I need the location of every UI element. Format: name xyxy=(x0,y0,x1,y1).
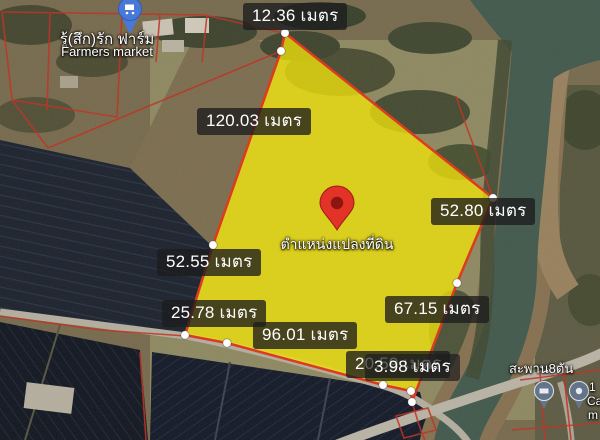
parcel-marker-label: ตำแหน่งแปลงที่ดิน xyxy=(262,234,412,256)
measurement-upper-left: 120.03 เมตร xyxy=(197,108,311,135)
bridge-label: สะพาน8ตัน xyxy=(509,358,573,379)
measurement-lower-right: 67.15 เมตร xyxy=(385,296,489,323)
measurement-left: 52.55 เมตร xyxy=(157,249,261,276)
measurement-right: 52.80 เมตร xyxy=(431,198,535,225)
measurement-bottom: 96.01 เมตร xyxy=(253,322,357,349)
measurement-corner-b: 3.98 เมตร xyxy=(365,354,460,381)
satellite-map[interactable]: รู้(สึก)รัก ฟาร์ม Farmers market 12.36 เ… xyxy=(0,0,600,440)
edge-poi-fragment-1: 1 xyxy=(589,381,596,394)
measurement-lower-left: 25.78 เมตร xyxy=(162,300,266,327)
edge-poi-fragment-2: Ca xyxy=(587,395,600,408)
farmers-market-name-en: Farmers market xyxy=(37,44,177,59)
edge-poi-fragment-3: m xyxy=(588,409,598,422)
measurement-top: 12.36 เมตร xyxy=(243,3,347,30)
